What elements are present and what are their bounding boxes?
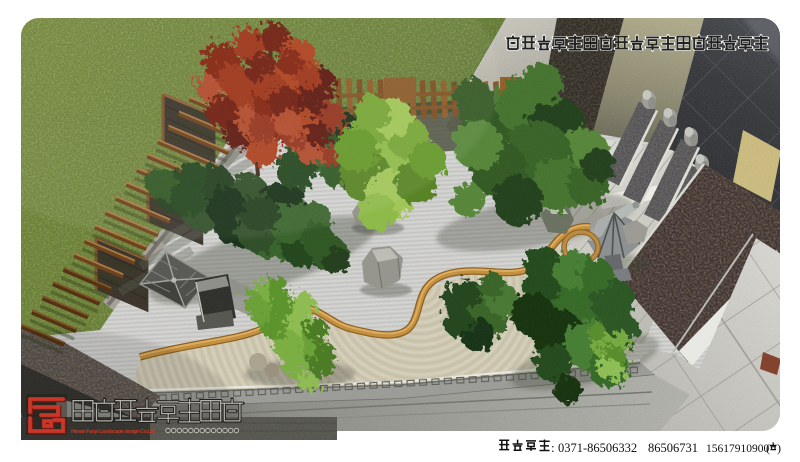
svg-text:Henan Fanyi Landscape design C: Henan Fanyi Landscape design Co.Ltd xyxy=(71,429,155,435)
svg-text:86506731: 86506731 xyxy=(648,441,698,455)
svg-text:0371-86506332: 0371-86506332 xyxy=(558,441,637,455)
svg-text:): ) xyxy=(777,441,781,455)
svg-text::: : xyxy=(551,440,555,455)
svg-text:15617910900: 15617910900 xyxy=(706,443,770,455)
svg-text:(: ( xyxy=(766,441,770,455)
